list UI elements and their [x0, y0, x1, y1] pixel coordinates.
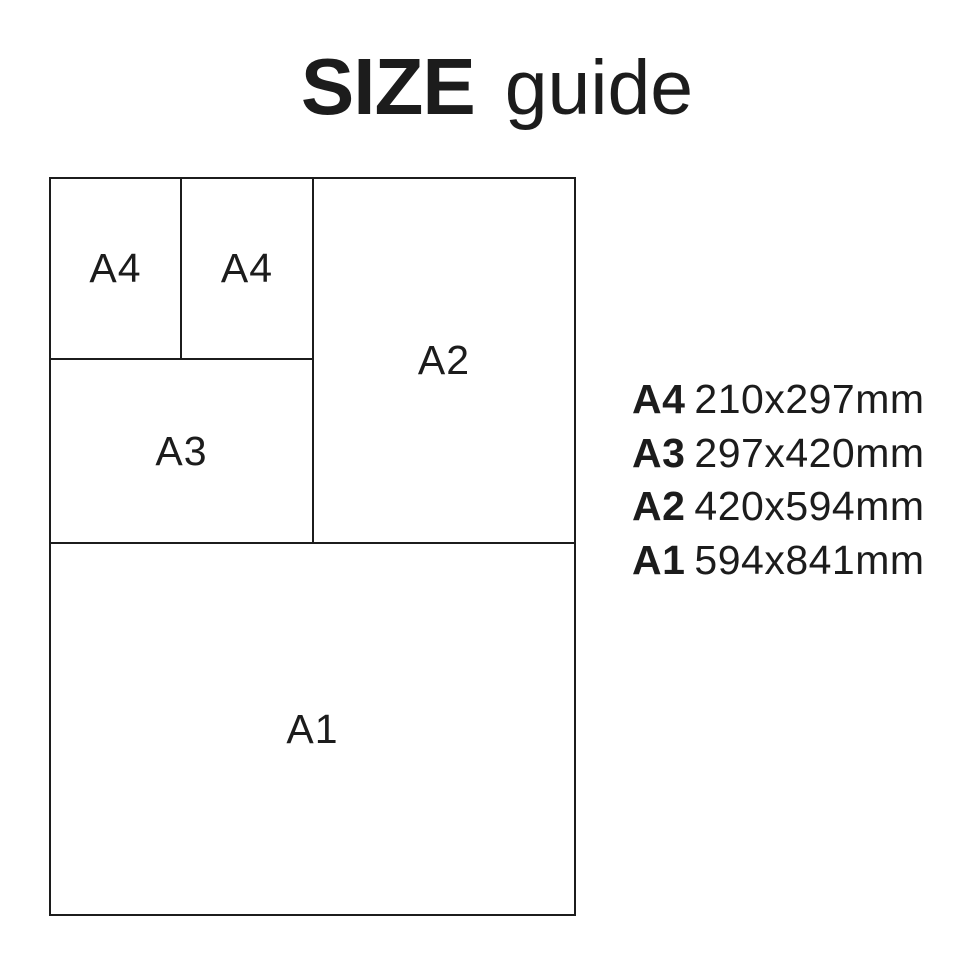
box-a2: A2 — [314, 179, 574, 542]
legend-item-a2: A2420x594mm — [632, 480, 925, 534]
box-a1: A1 — [51, 544, 574, 914]
diagram-top-section: A4 A4 A3 A2 — [51, 179, 574, 544]
box-a2-label: A2 — [418, 337, 470, 384]
legend-item-a1: A1594x841mm — [632, 534, 925, 588]
legend-a2-dimensions: 420x594mm — [694, 483, 924, 529]
legend-a2-size: A2 — [632, 483, 685, 529]
a4-pair-row: A4 A4 — [51, 179, 312, 360]
diagram-left-column: A4 A4 A3 — [51, 179, 314, 542]
title-word-size: SIZE — [301, 47, 475, 127]
box-a1-label: A1 — [286, 706, 338, 753]
paper-size-diagram: A4 A4 A3 A2 A1 — [49, 177, 576, 916]
box-a4-left: A4 — [51, 179, 182, 358]
legend-a4-dimensions: 210x297mm — [694, 376, 924, 422]
legend-a1-dimensions: 594x841mm — [694, 537, 924, 583]
box-a3-label: A3 — [155, 428, 207, 475]
legend-a3-dimensions: 297x420mm — [694, 430, 924, 476]
legend-item-a4: A4210x297mm — [632, 373, 925, 427]
box-a4-right: A4 — [182, 179, 312, 358]
legend-a1-size: A1 — [632, 537, 685, 583]
box-a3: A3 — [51, 360, 312, 542]
page-title: SIZE guide — [17, 47, 960, 127]
legend-a4-size: A4 — [632, 376, 685, 422]
box-a4-left-label: A4 — [89, 245, 141, 292]
title-word-guide: guide — [505, 50, 693, 127]
legend-a3-size: A3 — [632, 430, 685, 476]
size-guide-page: SIZE guide A4 A4 A3 A2 — [0, 0, 960, 960]
size-legend: A4210x297mm A3297x420mm A2420x594mm A159… — [632, 373, 925, 587]
box-a4-right-label: A4 — [221, 245, 273, 292]
legend-item-a3: A3297x420mm — [632, 427, 925, 481]
